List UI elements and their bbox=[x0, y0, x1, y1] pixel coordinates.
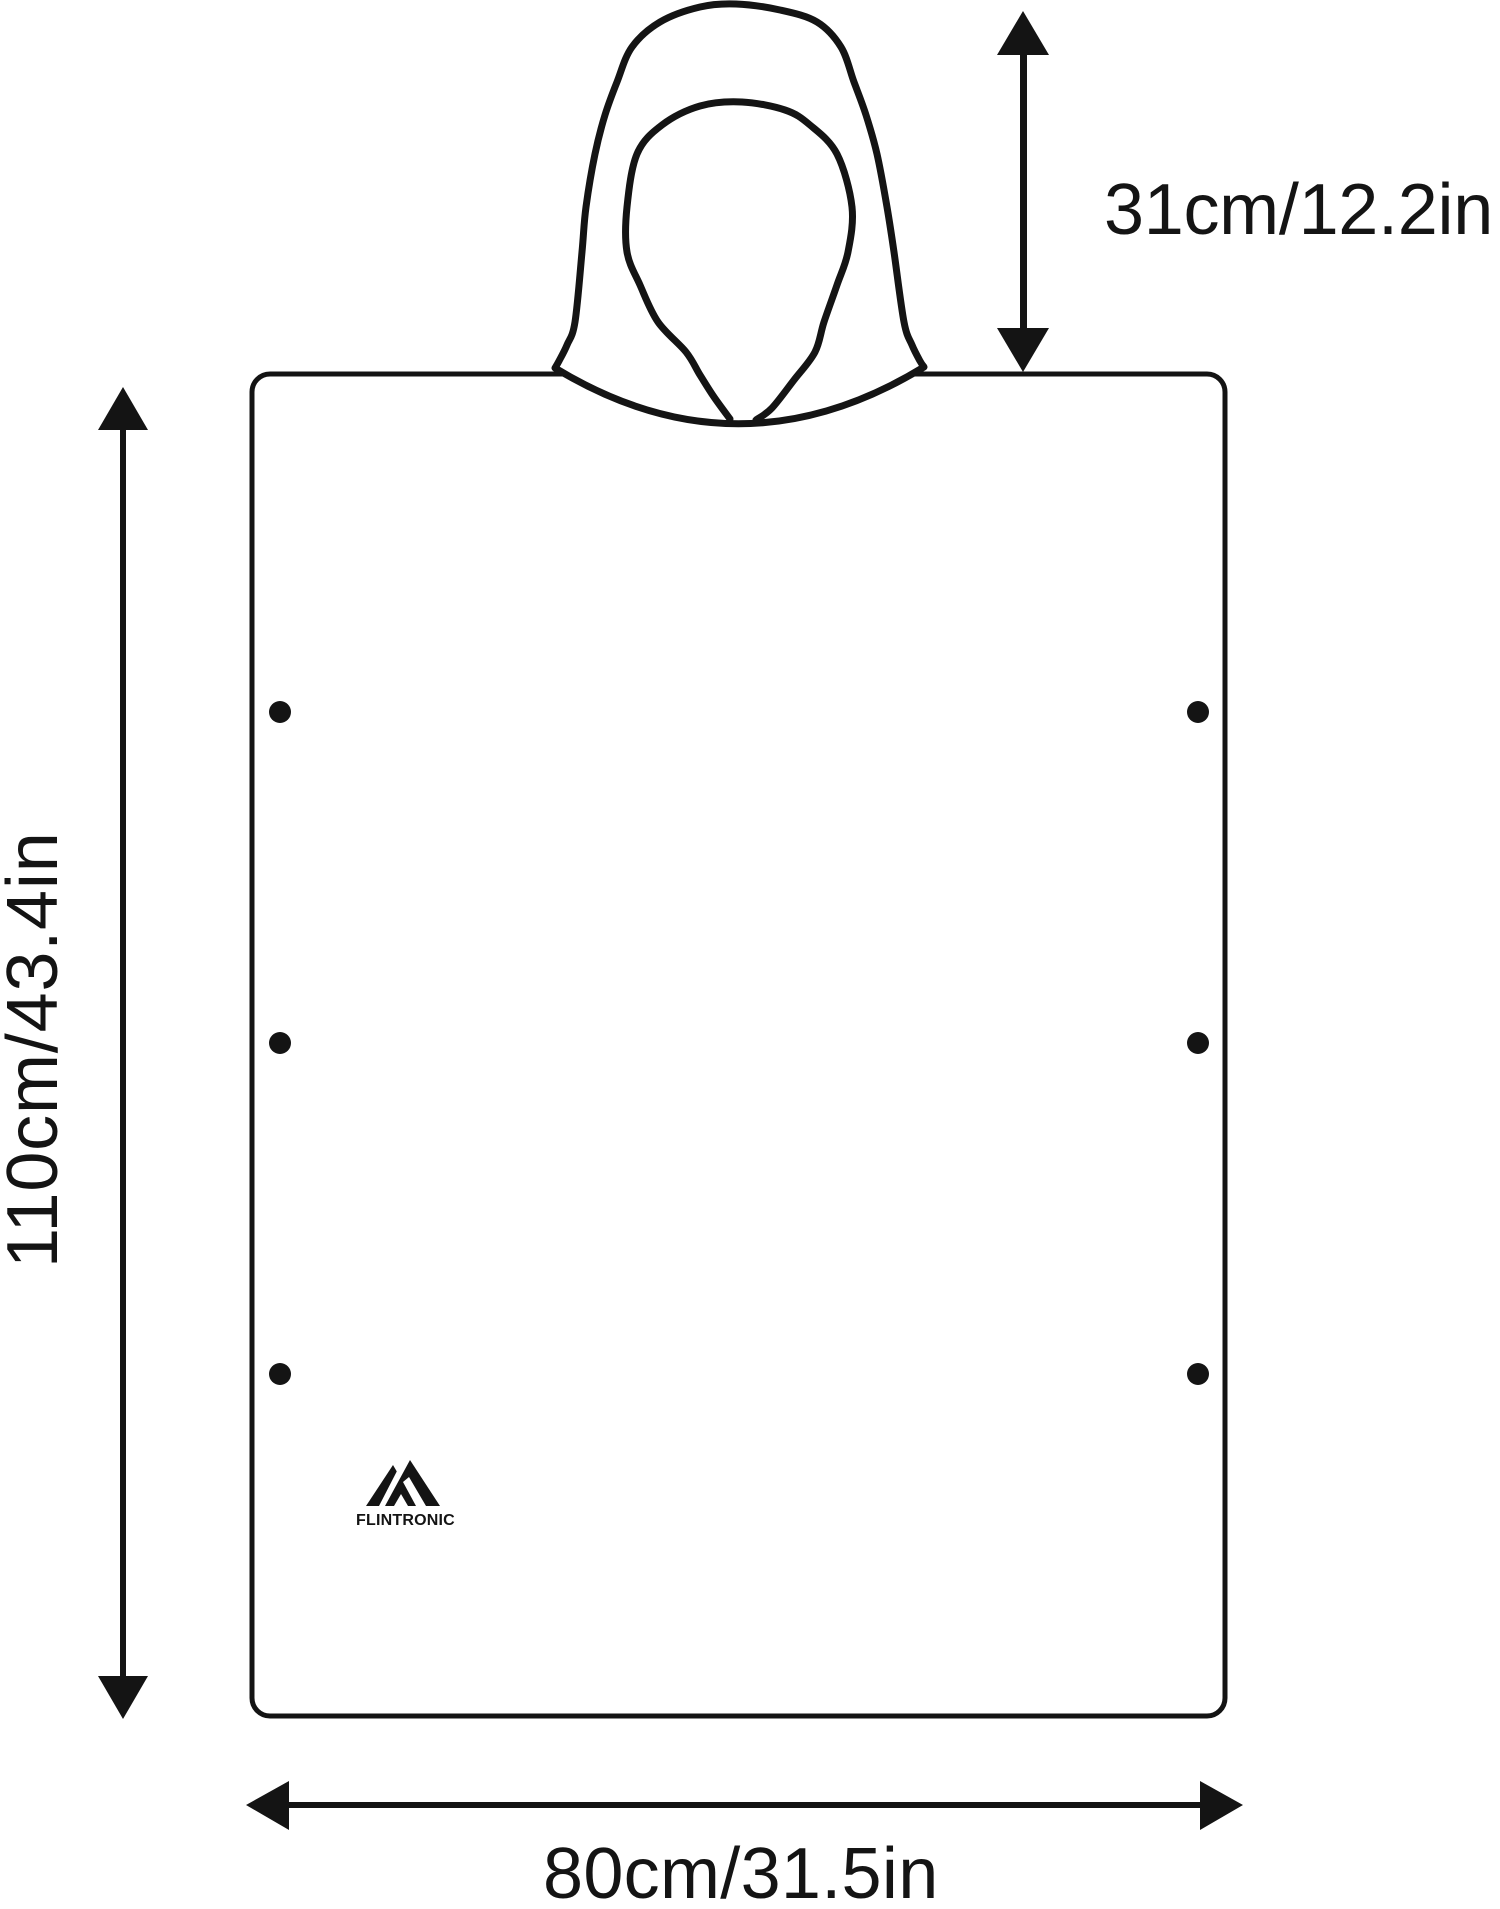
svg-text:110cm/43.4in: 110cm/43.4in bbox=[0, 831, 73, 1268]
svg-text:31cm/12.2in: 31cm/12.2in bbox=[1104, 170, 1493, 250]
svg-text:FLINTRONIC: FLINTRONIC bbox=[356, 1512, 455, 1529]
svg-text:80cm/31.5in: 80cm/31.5in bbox=[543, 1834, 939, 1909]
